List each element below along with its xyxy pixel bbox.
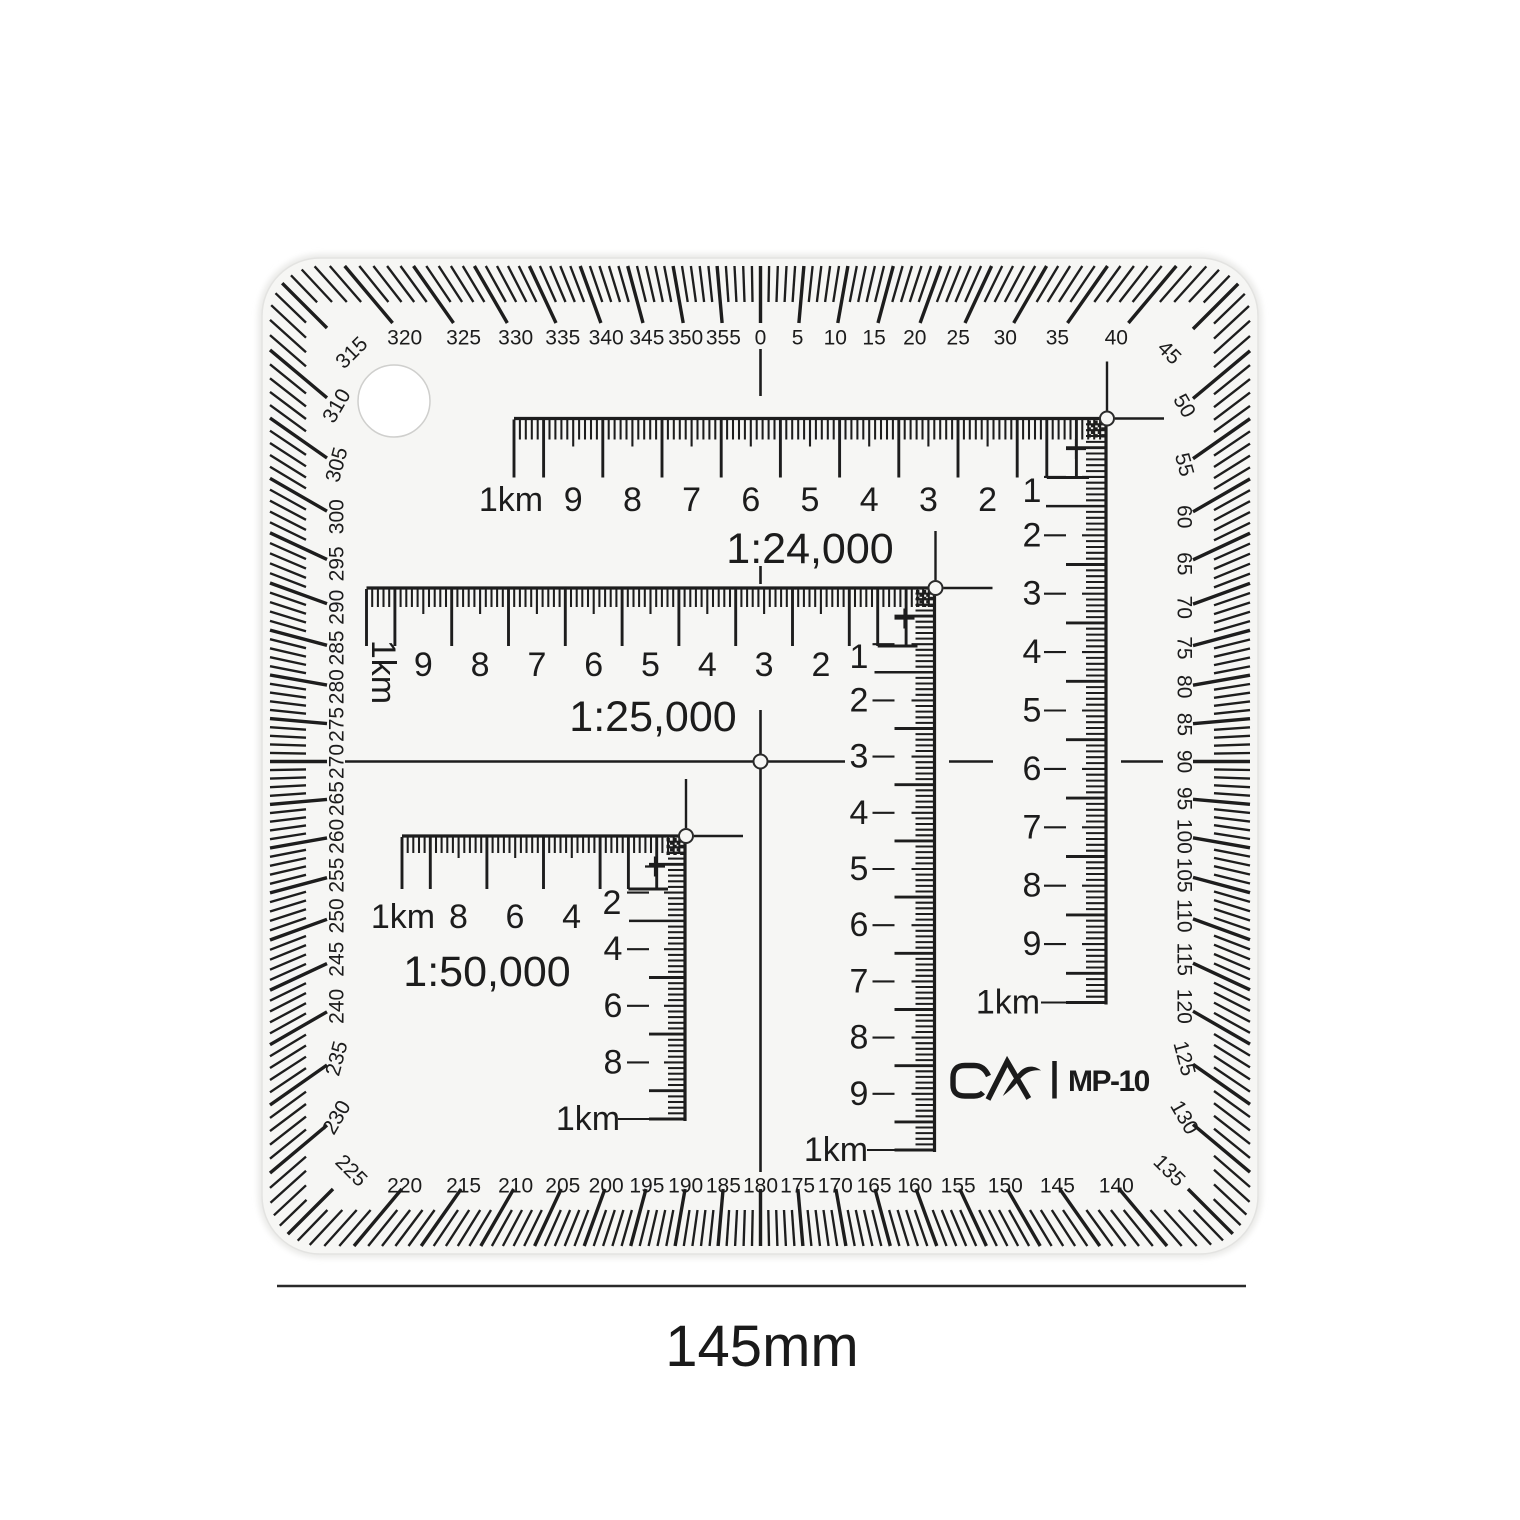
svg-text:3: 3 xyxy=(755,646,774,684)
svg-text:30: 30 xyxy=(994,327,1017,350)
svg-text:250: 250 xyxy=(326,898,349,933)
svg-text:2: 2 xyxy=(978,481,997,519)
svg-text:5: 5 xyxy=(1023,692,1042,730)
svg-text:8: 8 xyxy=(623,481,642,519)
svg-text:70: 70 xyxy=(1173,596,1196,619)
svg-text:95: 95 xyxy=(1173,787,1196,810)
svg-text:255: 255 xyxy=(326,858,349,893)
svg-text:150: 150 xyxy=(988,1175,1023,1198)
svg-text:1km: 1km xyxy=(804,1131,868,1169)
svg-text:7: 7 xyxy=(682,481,701,519)
svg-text:8: 8 xyxy=(1023,867,1042,905)
svg-text:100: 100 xyxy=(1173,819,1196,854)
svg-text:9: 9 xyxy=(564,481,583,519)
svg-text:145: 145 xyxy=(1040,1175,1075,1198)
svg-text:4: 4 xyxy=(860,481,879,519)
svg-text:6: 6 xyxy=(1023,750,1042,788)
svg-text:40: 40 xyxy=(1105,327,1128,350)
svg-text:110: 110 xyxy=(1173,899,1196,932)
svg-text:345: 345 xyxy=(629,327,664,350)
svg-text:335: 335 xyxy=(545,327,580,350)
svg-text:3: 3 xyxy=(850,738,869,776)
svg-text:5: 5 xyxy=(850,850,869,888)
svg-text:120: 120 xyxy=(1173,989,1196,1024)
svg-text:4: 4 xyxy=(604,930,623,968)
svg-text:155: 155 xyxy=(941,1175,976,1198)
svg-text:9: 9 xyxy=(1023,925,1042,963)
svg-text:300: 300 xyxy=(326,499,349,534)
svg-text:5: 5 xyxy=(801,481,820,519)
svg-text:265: 265 xyxy=(326,781,349,816)
svg-text:1: 1 xyxy=(1023,472,1042,510)
svg-text:60: 60 xyxy=(1173,505,1196,528)
svg-text:330: 330 xyxy=(498,327,533,350)
svg-text:195: 195 xyxy=(629,1175,664,1198)
svg-text:185: 185 xyxy=(706,1175,741,1198)
svg-text:1km: 1km xyxy=(976,984,1040,1022)
svg-text:170: 170 xyxy=(818,1175,853,1198)
svg-text:115: 115 xyxy=(1173,942,1196,975)
svg-text:290: 290 xyxy=(326,590,349,625)
svg-text:1:24,000: 1:24,000 xyxy=(726,525,893,573)
svg-text:75: 75 xyxy=(1173,636,1196,659)
svg-text:1km: 1km xyxy=(556,1100,620,1138)
svg-text:8: 8 xyxy=(471,646,490,684)
svg-text:7: 7 xyxy=(850,962,869,1000)
svg-text:6: 6 xyxy=(584,646,603,684)
svg-text:3: 3 xyxy=(1023,575,1042,613)
svg-text:8: 8 xyxy=(449,898,468,936)
svg-text:165: 165 xyxy=(857,1175,892,1198)
svg-text:145mm: 145mm xyxy=(665,1314,858,1379)
svg-text:8: 8 xyxy=(850,1019,869,1057)
svg-text:175: 175 xyxy=(780,1175,815,1198)
svg-text:0: 0 xyxy=(755,327,767,350)
svg-text:25: 25 xyxy=(947,327,970,350)
svg-text:275: 275 xyxy=(326,707,349,742)
svg-text:245: 245 xyxy=(326,942,349,977)
svg-text:240: 240 xyxy=(326,989,349,1024)
svg-text:6: 6 xyxy=(506,898,525,936)
svg-text:2: 2 xyxy=(603,884,622,922)
svg-text:3: 3 xyxy=(919,481,938,519)
svg-text:1km: 1km xyxy=(371,898,435,936)
svg-text:355: 355 xyxy=(706,327,741,350)
svg-text:6: 6 xyxy=(604,987,623,1025)
svg-text:6: 6 xyxy=(850,906,869,944)
svg-text:205: 205 xyxy=(545,1175,580,1198)
svg-text:215: 215 xyxy=(446,1175,481,1198)
svg-text:2: 2 xyxy=(1023,516,1042,554)
svg-text:MP-10: MP-10 xyxy=(1068,1065,1150,1098)
svg-text:285: 285 xyxy=(326,630,349,665)
svg-text:90: 90 xyxy=(1173,750,1196,773)
svg-text:180: 180 xyxy=(743,1175,778,1198)
svg-text:7: 7 xyxy=(1023,808,1042,846)
svg-text:190: 190 xyxy=(668,1175,703,1198)
svg-text:280: 280 xyxy=(326,669,349,704)
svg-text:65: 65 xyxy=(1173,552,1196,575)
svg-text:8: 8 xyxy=(604,1043,623,1081)
svg-text:4: 4 xyxy=(850,794,869,832)
svg-text:15: 15 xyxy=(862,327,885,350)
svg-text:295: 295 xyxy=(326,546,349,581)
svg-text:7: 7 xyxy=(527,646,546,684)
svg-text:5: 5 xyxy=(792,327,804,350)
svg-text:4: 4 xyxy=(562,898,581,936)
svg-text:1km: 1km xyxy=(364,640,402,704)
svg-text:260: 260 xyxy=(326,819,349,854)
svg-text:2: 2 xyxy=(850,681,869,719)
svg-text:210: 210 xyxy=(498,1175,533,1198)
svg-text:4: 4 xyxy=(698,646,717,684)
svg-text:105: 105 xyxy=(1173,858,1196,893)
svg-text:350: 350 xyxy=(668,327,703,350)
svg-text:1km: 1km xyxy=(479,481,543,519)
svg-text:200: 200 xyxy=(589,1175,624,1198)
svg-text:140: 140 xyxy=(1099,1175,1134,1198)
svg-text:20: 20 xyxy=(903,327,926,350)
svg-text:5: 5 xyxy=(641,646,660,684)
svg-text:10: 10 xyxy=(824,327,847,350)
svg-text:220: 220 xyxy=(387,1175,422,1198)
svg-text:85: 85 xyxy=(1173,713,1196,736)
svg-text:4: 4 xyxy=(1023,633,1042,671)
svg-text:9: 9 xyxy=(850,1075,869,1113)
svg-text:340: 340 xyxy=(589,327,624,350)
svg-text:1:25,000: 1:25,000 xyxy=(569,693,736,741)
svg-text:35: 35 xyxy=(1046,327,1069,350)
svg-text:80: 80 xyxy=(1173,675,1196,698)
svg-text:325: 325 xyxy=(446,327,481,350)
svg-text:160: 160 xyxy=(897,1175,932,1198)
svg-text:1: 1 xyxy=(850,638,869,676)
svg-text:1:50,000: 1:50,000 xyxy=(403,948,570,996)
svg-text:320: 320 xyxy=(387,327,422,350)
svg-text:9: 9 xyxy=(414,646,433,684)
svg-text:6: 6 xyxy=(741,481,760,519)
svg-text:2: 2 xyxy=(811,646,830,684)
